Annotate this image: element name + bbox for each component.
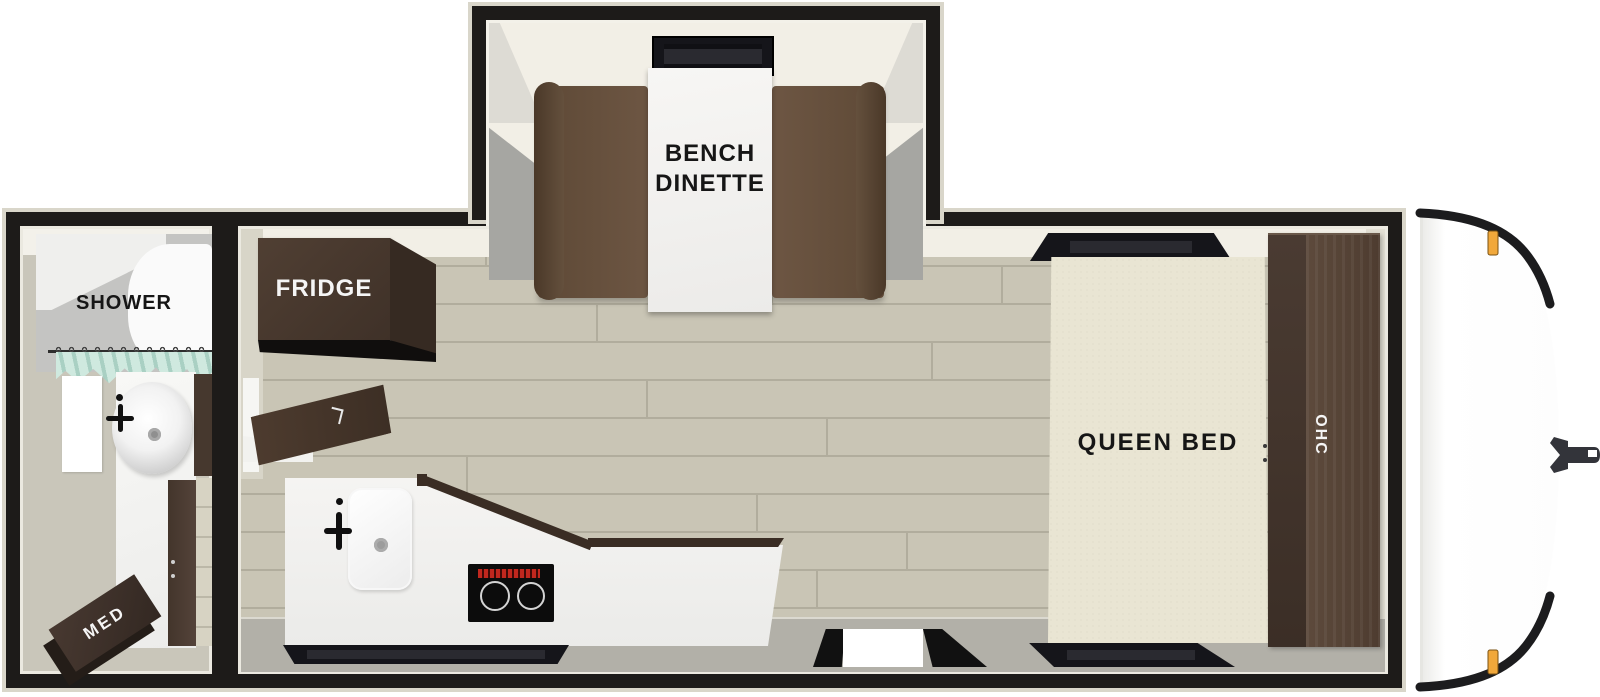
kitchen-faucet-handle	[324, 528, 352, 534]
cooktop-burner	[517, 582, 545, 610]
linen-shelves	[196, 478, 212, 646]
floor-plank-seam	[646, 381, 648, 417]
upper-bath-cabinet	[194, 374, 212, 476]
marker-light-top	[1488, 231, 1498, 255]
floor-plank-seam	[756, 495, 758, 531]
bathroom-door	[62, 376, 102, 472]
bed-window-top	[1030, 233, 1232, 261]
front-cap	[1404, 205, 1600, 695]
front-cap-seam	[1420, 215, 1423, 685]
bathroom-faucet-dot	[116, 394, 123, 401]
marker-light-bottom	[1488, 650, 1498, 674]
ohc-label-wrap: OHC	[1298, 411, 1342, 459]
floor-plank-seam	[466, 457, 468, 493]
bed-window-top-glass	[1070, 241, 1192, 253]
floor-plank-seam	[906, 533, 908, 569]
dinette-window-glass	[664, 44, 762, 68]
floor-plank-seam	[816, 571, 818, 607]
cooktop-burner	[480, 581, 510, 611]
kitchen-window	[283, 645, 569, 664]
wardrobe-handle	[171, 574, 175, 578]
dinette-bench-right-armrest	[856, 82, 886, 300]
kitchen-window-glass	[307, 650, 545, 659]
wardrobe-handle	[171, 560, 175, 564]
overhead-cabinet: OHC	[1268, 233, 1380, 647]
ohc-label: OHC	[1311, 414, 1329, 456]
bed-window-bottom-glass	[1067, 650, 1195, 660]
floor-plank-seam	[1001, 267, 1003, 303]
bathroom-faucet-handle	[106, 416, 134, 421]
fridge-label: FRIDGE	[276, 275, 373, 303]
hitch-notch	[1588, 450, 1597, 457]
dinette-bench-left-armrest	[534, 82, 564, 300]
bathroom-divider-wall	[212, 226, 238, 674]
queen-bed-label: QUEEN BED	[1048, 429, 1268, 457]
entry-door-opening	[843, 629, 923, 667]
rv-floorplan: SHOWER MED FRIDGE	[0, 0, 1600, 697]
floor-plank-seam	[826, 419, 828, 455]
kitchen-faucet-dot	[336, 498, 343, 505]
dinette-table: BENCH DINETTE	[648, 68, 772, 312]
bed-latch	[1263, 458, 1267, 462]
dinette-label-line1: BENCH	[648, 140, 772, 168]
dinette-label-line2: DINETTE	[648, 170, 772, 198]
shower-label: SHOWER	[36, 292, 212, 315]
front-cap-body	[1420, 215, 1559, 685]
queen-bed: QUEEN BED	[1048, 257, 1268, 643]
counter-backsplash	[588, 538, 784, 547]
bed-latch	[1263, 444, 1267, 448]
med-label: MED	[80, 602, 130, 644]
cooktop-display	[478, 569, 540, 578]
floor-plank-seam	[931, 343, 933, 379]
cooktop	[468, 564, 554, 622]
floor-plank-seam	[596, 305, 598, 341]
bathroom-sink-drain	[148, 428, 161, 441]
fridge: FRIDGE	[258, 238, 390, 340]
kitchen-sink-drain	[374, 538, 388, 552]
